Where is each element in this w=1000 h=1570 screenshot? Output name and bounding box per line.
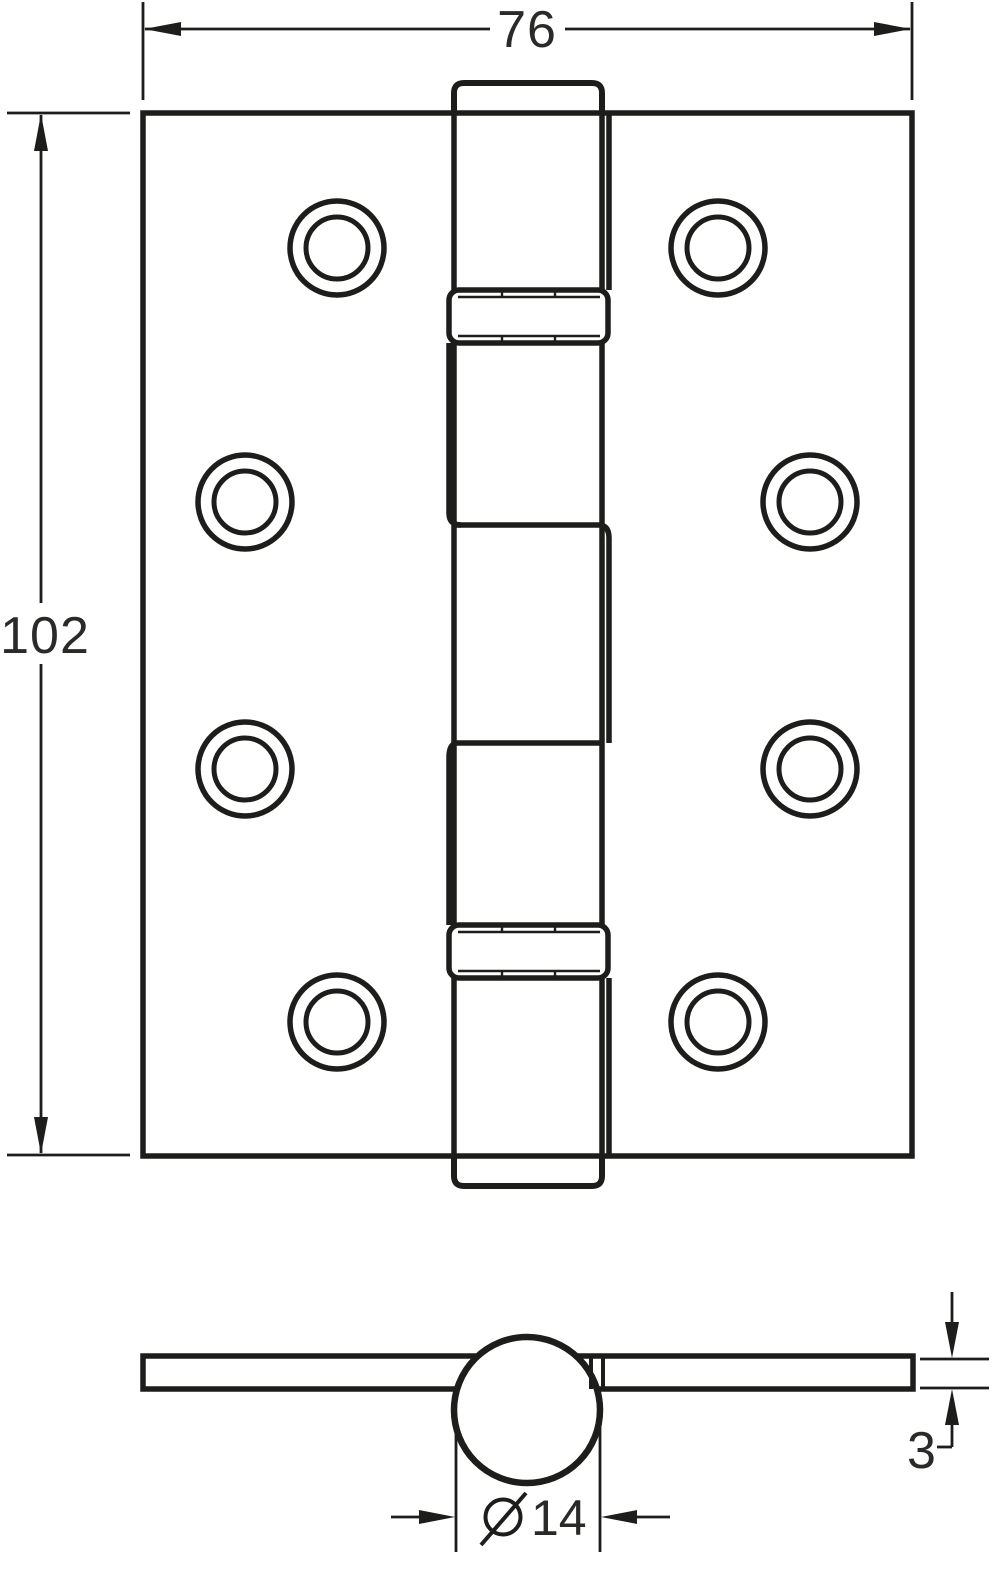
arrowhead-right-icon — [874, 22, 911, 36]
knuckle-bottom-cap — [454, 1156, 602, 1186]
hinge-leaf-outline — [143, 113, 912, 1156]
diameter-symbol-icon — [481, 1493, 526, 1545]
dimension-diameter-label: 14 — [531, 1490, 587, 1546]
bottom-view: 14 3 — [143, 1292, 989, 1552]
arrowhead-down-icon — [945, 1322, 959, 1358]
ball-bearing-race-top — [449, 290, 608, 343]
arrowhead-left-icon — [144, 22, 181, 36]
dimension-thickness-label: 3 — [907, 1422, 937, 1480]
arrowhead-right-icon — [419, 1510, 455, 1524]
arrowhead-up-icon — [34, 114, 48, 151]
drawing-sheet: 76 102 — [0, 0, 1000, 1570]
dimension-height: 102 — [0, 113, 130, 1155]
arrowhead-down-icon — [34, 1117, 48, 1154]
ball-bearing-race-bottom — [449, 925, 608, 978]
front-view: 76 102 — [0, 1, 912, 1186]
dimension-thickness: 3 — [907, 1292, 989, 1480]
dimension-width-label: 76 — [497, 1, 557, 59]
hinge-technical-drawing: 76 102 — [0, 0, 1000, 1570]
knuckle-top-cap — [454, 83, 602, 113]
dimension-height-label: 102 — [0, 607, 90, 665]
knuckle-section-circle — [454, 1337, 600, 1483]
arrowhead-left-icon — [601, 1510, 637, 1524]
arrowhead-up-icon — [945, 1389, 959, 1425]
